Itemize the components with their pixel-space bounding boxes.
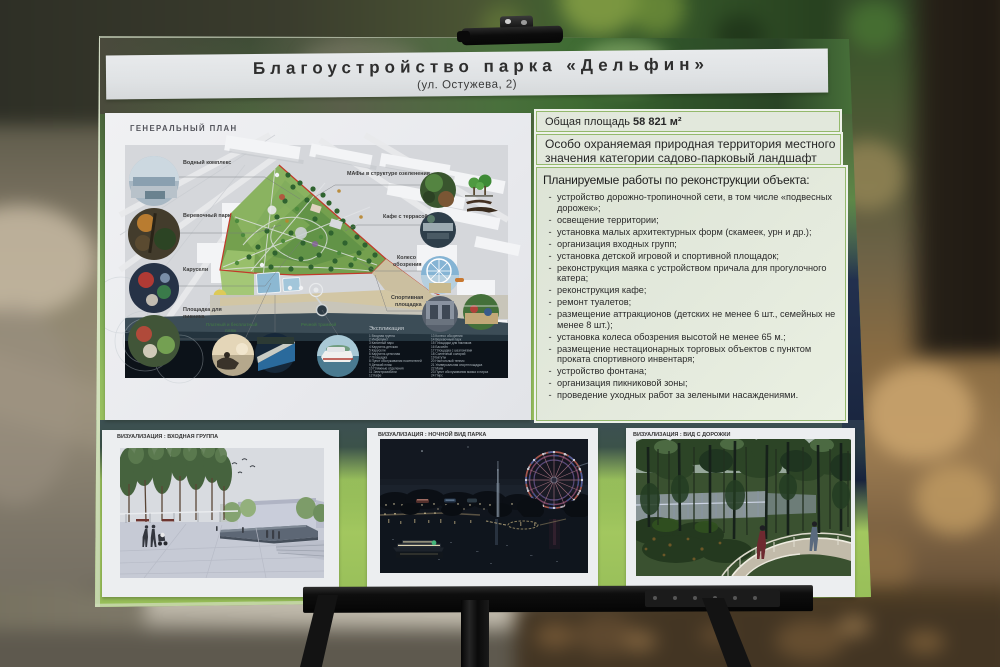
svg-text:пляж: пляж — [225, 328, 237, 333]
svg-text:Речной трамвай: Речной трамвай — [301, 322, 337, 327]
svg-text:пикника: пикника — [183, 314, 206, 320]
svg-text:Колесо: Колесо — [397, 255, 417, 261]
svg-text:Веревочный парк: Веревочный парк — [183, 212, 231, 219]
svg-text:МАФы в структуре озеленения: МАФы в структуре озеленения — [347, 171, 430, 177]
svg-text:Кафе с террасой: Кафе с террасой — [383, 213, 428, 220]
svg-text:Спортивная: Спортивная — [391, 295, 423, 301]
svg-text:12 Кафе: 12 Кафе — [369, 374, 382, 378]
svg-text:Водный комплекс: Водный комплекс — [183, 159, 231, 166]
svg-text:24 Пирс: 24 Пирс — [431, 374, 443, 378]
svg-text:площадка: площадка — [395, 302, 423, 308]
svg-text:обозрения: обозрения — [393, 261, 422, 268]
svg-text:Платный и бесплатный: Платный и бесплатный — [206, 322, 258, 327]
svg-text:Площадка для: Площадка для — [183, 307, 222, 313]
svg-text:Карусели: Карусели — [183, 267, 208, 273]
svg-text:Экспликация: Экспликация — [369, 326, 404, 332]
